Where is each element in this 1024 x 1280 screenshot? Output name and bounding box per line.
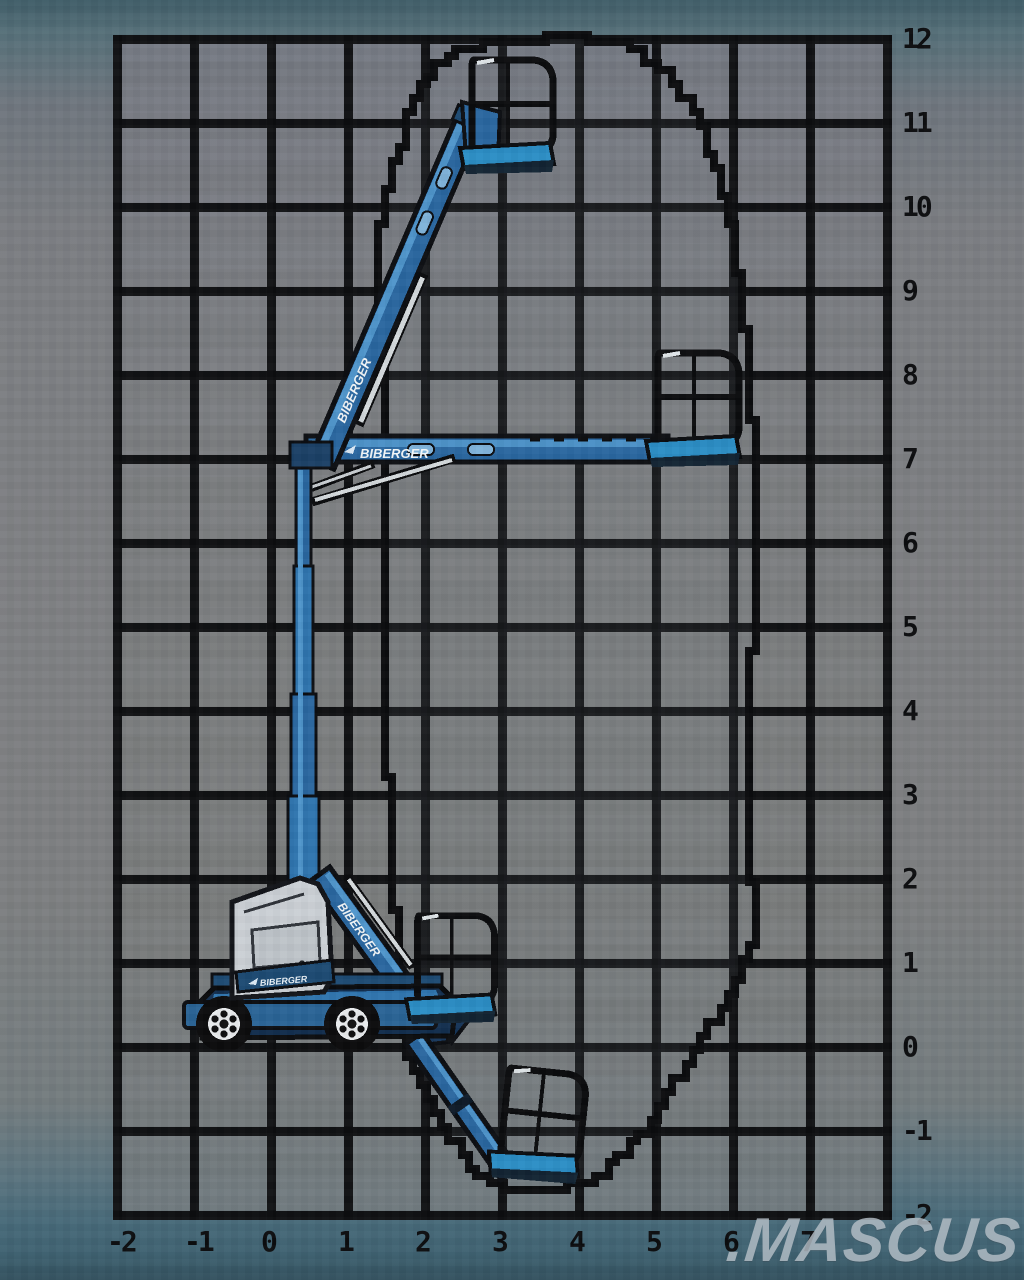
- wheel-rear: [196, 996, 252, 1052]
- wheel-front: [324, 996, 380, 1052]
- engine-cowling: BIBERGER: [232, 878, 334, 998]
- reach-diagram: 1211109876543210-1-2 -2-101234567 BIBERG…: [0, 0, 1024, 1280]
- lift-diagram-svg: BIBERGER BIBERGER: [0, 0, 1024, 1280]
- boom-horizontal: BIBERGER: [306, 436, 668, 462]
- brand-label-horizontal-boom: BIBERGER: [360, 446, 429, 461]
- boom-pivot-bracket: [290, 442, 332, 468]
- telescopic-mast: [288, 442, 332, 888]
